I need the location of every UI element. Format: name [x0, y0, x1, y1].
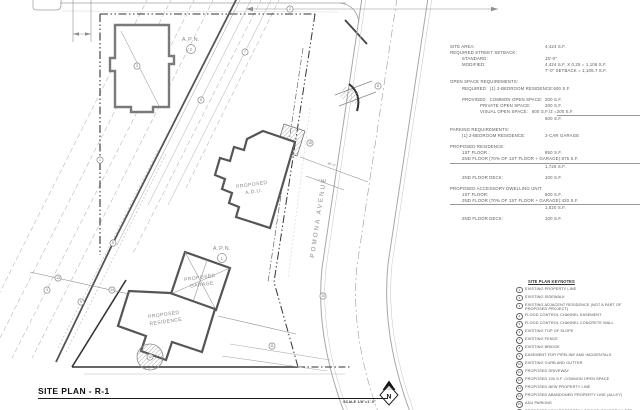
note-row: 1,020 S.F. — [450, 205, 640, 211]
keynote-text: EXISTING PROPERTY LINE — [525, 287, 638, 292]
keynote-number: 8 — [516, 345, 523, 352]
note-value: 875 S.F. — [562, 156, 640, 162]
keynote-number: 9 — [516, 353, 523, 360]
keynote-number: 2 — [516, 295, 523, 302]
keynote-item: 14PROPOSED ABANDONED PROPERTY LINE (ALLE… — [516, 393, 638, 400]
note-label — [450, 205, 545, 211]
keynote-number: 7 — [516, 337, 523, 344]
apn1-number: 1 — [220, 256, 223, 261]
keynote-item: 6EXISTING TOP OF SLOPE — [516, 329, 638, 336]
bubble-5: 5 — [112, 241, 114, 245]
keynote-item: 10EXISTING CURB AND GUTTER — [516, 361, 638, 368]
apn1-label: A.P.N. — [213, 246, 231, 252]
note-row: VISUAL OPEN SPACE: 600 S.F./3 =200 S.F. — [450, 109, 640, 116]
keynote-item: 1EXISTING PROPERTY LINE — [516, 287, 638, 294]
keynote-number: 4 — [516, 313, 523, 320]
note-value: 1,020 S.F. — [545, 205, 640, 211]
keynote-text: PROPOSED NEW PROPERTY LINE — [525, 385, 638, 390]
note-row: 2ND FLOOR DECK:100 S.F. — [450, 175, 640, 181]
keynote-item: 12PROPOSED 100 S.F. COMMON OPEN SPACE — [516, 377, 638, 384]
keynote-text: PROPOSED ABANDONED PROPERTY LINE (ALLEY) — [525, 393, 638, 398]
bubble-2: 2 — [289, 7, 291, 11]
note-label: 2ND FLOOR (70% OF 1ST FLOOR + GARAGE): — [450, 198, 562, 204]
keynote-item: 15ADU PARKING — [516, 401, 638, 408]
bubble-10: 10 — [321, 294, 325, 298]
note-value: 100 S.F. — [545, 175, 640, 181]
keynote-number: 14 — [516, 393, 523, 400]
note-value: 420 S.F. — [562, 198, 640, 204]
note-row: (1) 2-BEDROOM RESIDENCE:2-CAR GARAGE — [450, 133, 640, 139]
bubble-7: 7 — [244, 50, 246, 54]
keynote-text: PROPOSED 100 S.F. COMMON OPEN SPACE — [525, 377, 638, 382]
note-row: 7'-0" SETBACK = 1,106.7 S.F. — [450, 68, 640, 74]
note-value: 7'-0" SETBACK = 1,106.7 S.F. — [545, 68, 640, 74]
bubble-12: 12 — [148, 355, 152, 359]
keynote-number: 10 — [516, 361, 523, 368]
note-label: 2ND FLOOR DECK: — [450, 216, 545, 222]
keynote-item: 8EXISTING BRIDGE — [516, 345, 638, 352]
keynote-number: 15 — [516, 401, 523, 408]
keynotes-legend: SITE PLAN KEYNOTES 1EXISTING PROPERTY LI… — [516, 280, 638, 410]
keynote-text: EXISTING TOP OF SLOPE — [525, 329, 638, 334]
note-value: 1,725 S.F. — [545, 164, 640, 170]
keynote-number: 5 — [516, 321, 523, 328]
note-label: 2ND FLOOR DECK: — [450, 175, 545, 181]
note-value: 600 S.F. — [545, 116, 640, 122]
keynote-text: ADU PARKING — [525, 401, 638, 406]
note-value: 2-CAR GARAGE — [545, 133, 640, 139]
note-row: 2ND FLOOR (70% OF 1ST FLOOR + GARAGE):87… — [450, 156, 640, 163]
title-rule — [38, 398, 388, 399]
keynotes-title: SITE PLAN KEYNOTES — [528, 280, 638, 285]
proposed-adu-outline — [215, 131, 295, 228]
bubble-14: 14 — [110, 288, 114, 292]
note-value: 600 S.F. — [553, 86, 640, 92]
keynote-text: FLOOD CONTROL CHANNEL CONCRETE WALL — [525, 321, 638, 326]
note-row: 2ND FLOOR DECK:100 S.F. — [450, 216, 640, 222]
bubble-15: 15 — [308, 141, 312, 145]
keynote-item: 5FLOOD CONTROL CHANNEL CONCRETE WALL — [516, 321, 638, 328]
keynote-number: 3 — [516, 303, 523, 310]
note-label: REQUIRED: (1) 2-BEDROOM RESIDENCE: — [450, 86, 553, 92]
note-label: VISUAL OPEN SPACE: 600 S.F./3 = — [450, 109, 557, 116]
bubble-3: 3 — [136, 64, 138, 68]
keynote-number: 1 — [516, 287, 523, 294]
apn2-label: A.P.N. — [182, 37, 200, 43]
note-label — [450, 116, 545, 122]
keynote-number: 12 — [516, 377, 523, 384]
note-row: 1,725 S.F. — [450, 164, 640, 170]
keynote-text: EXISTING SIDEWALK — [525, 295, 638, 300]
apn-labels: A.P.N. 2 A.P.N. 1 — [182, 37, 231, 263]
keynote-item: 2EXISTING SIDEWALK — [516, 295, 638, 302]
note-label: 2ND FLOOR (70% OF 1ST FLOOR + GARAGE): — [450, 156, 562, 162]
keynote-text: EASEMENT FOR PIPELINE AND INCIDENTALS — [525, 353, 638, 358]
keynote-item: 4FLOOD CONTROL CHANNEL EASEMENT — [516, 313, 638, 320]
keynote-item: 11PROPOSED DRIVEWAY — [516, 369, 638, 376]
keynote-item: 7EXISTING FENCE — [516, 337, 638, 344]
project-notes-panel: SITE AREA:4,424 S.F. REQUIRED STREET SET… — [450, 44, 640, 222]
note-value: 200 S.F. — [557, 109, 640, 116]
keynote-text: FLOOD CONTROL CHANNEL EASEMENT — [525, 313, 638, 318]
note-row: REQUIRED: (1) 2-BEDROOM RESIDENCE:600 S.… — [450, 86, 640, 92]
keynote-number: 6 — [516, 329, 523, 336]
bubble-8: 8 — [377, 84, 379, 88]
north-arrow-icon: N — [380, 381, 398, 406]
bubble-9: 9 — [80, 300, 82, 304]
sheet-title: SITE PLAN - R-1 — [38, 386, 110, 396]
note-label — [450, 68, 545, 74]
keynote-number: 13 — [516, 385, 523, 392]
keynote-text: PROPOSED DRIVEWAY — [525, 369, 638, 374]
bubble-1: 1 — [99, 158, 101, 162]
keynote-item: 3EXISTING ADJACENT RESIDENCE (NOT A PART… — [516, 303, 638, 312]
bubble-13: 13 — [56, 276, 60, 280]
keynote-number: 11 — [516, 369, 523, 376]
keynote-item: 9EASEMENT FOR PIPELINE AND INCIDENTALS — [516, 353, 638, 360]
note-value: 100 S.F. — [545, 216, 640, 222]
bridge — [335, 81, 376, 111]
note-row: 600 S.F. — [450, 116, 640, 122]
keynote-text: EXISTING FENCE — [525, 337, 638, 342]
note-label — [450, 164, 545, 170]
keynote-text: EXISTING CURB AND GUTTER — [525, 361, 638, 366]
bubble-6: 6 — [200, 98, 202, 102]
scale-label: SCALE 1/8"=1'-0" — [318, 400, 376, 404]
keynote-text: EXISTING BRIDGE — [525, 345, 638, 350]
keynote-item: 13PROPOSED NEW PROPERTY LINE — [516, 385, 638, 392]
note-label: (1) 2-BEDROOM RESIDENCE: — [450, 133, 545, 139]
apn2-number: 2 — [189, 47, 192, 52]
bubble-11: 11 — [270, 344, 274, 348]
keynote-text: EXISTING ADJACENT RESIDENCE (NOT A PART … — [525, 303, 638, 312]
note-row: 2ND FLOOR (70% OF 1ST FLOOR + GARAGE):42… — [450, 198, 640, 205]
site-plan-sheet: 36'-0" 7'-0" PROPOSED A.D.U. PROPOSED GA… — [0, 0, 640, 410]
bubble-4: 4 — [46, 288, 48, 292]
existing-residence-outline — [110, 25, 174, 112]
